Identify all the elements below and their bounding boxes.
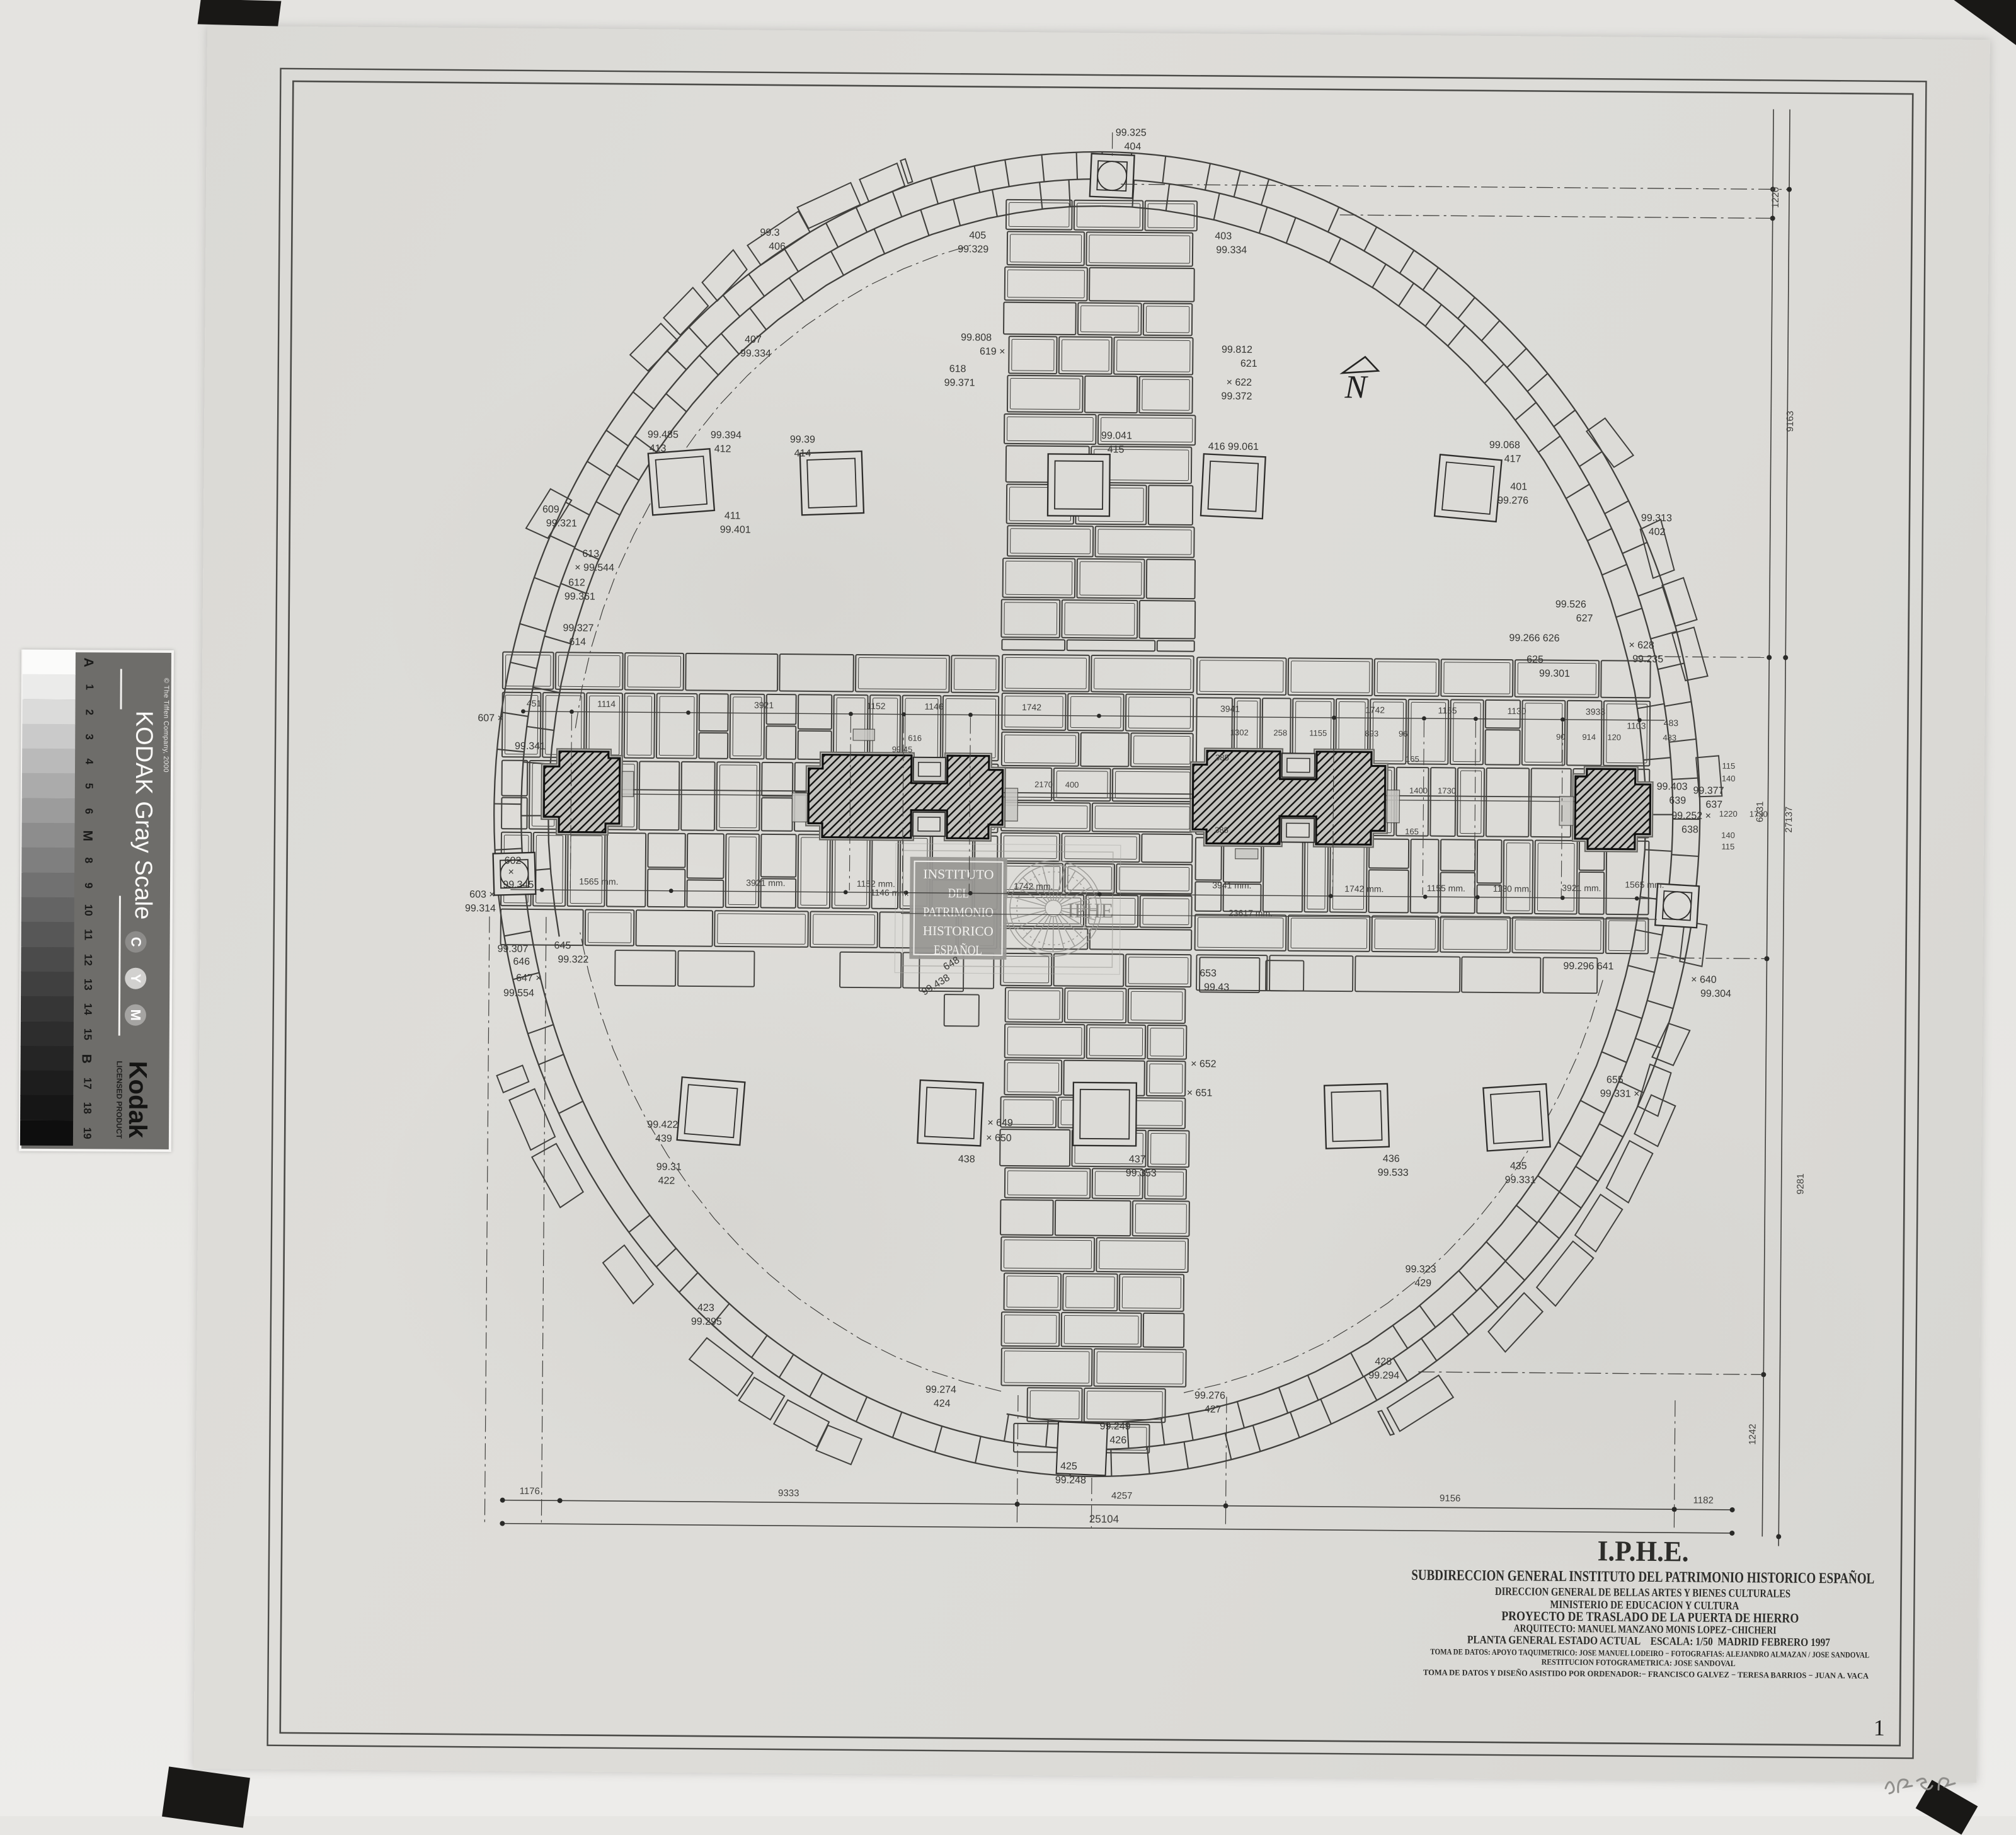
svg-text:404: 404: [1124, 141, 1141, 152]
svg-text:3921 mm.: 3921 mm.: [1562, 883, 1601, 893]
svg-text:99.322: 99.322: [558, 954, 588, 965]
svg-text:653: 653: [1200, 968, 1217, 979]
svg-text:27137: 27137: [1784, 807, 1794, 833]
svg-text:N: N: [1344, 369, 1368, 405]
svg-text:1182: 1182: [1693, 1495, 1714, 1505]
svg-text:1114: 1114: [597, 699, 616, 709]
svg-text:99.554: 99.554: [503, 988, 534, 999]
svg-text:424: 424: [934, 1398, 951, 1409]
svg-text:HISTORICO: HISTORICO: [923, 923, 994, 939]
svg-text:1155 mm.: 1155 mm.: [1427, 883, 1465, 893]
svg-text:99.327: 99.327: [563, 623, 593, 633]
svg-text:655: 655: [1606, 1074, 1624, 1085]
svg-text:99.526: 99.526: [1555, 599, 1586, 610]
svg-text:618: 618: [949, 364, 966, 374]
svg-text:165: 165: [1405, 827, 1419, 836]
svg-text:1152: 1152: [866, 701, 885, 711]
svg-text:99.041: 99.041: [1101, 430, 1132, 441]
svg-text:115: 115: [1722, 761, 1735, 771]
svg-text:99.403: 99.403: [1657, 781, 1688, 792]
svg-text:99.276: 99.276: [1194, 1390, 1225, 1401]
svg-text:1: 1: [1874, 1715, 1885, 1740]
svg-text:400: 400: [1065, 780, 1079, 790]
svg-text:403: 403: [1215, 231, 1232, 241]
svg-text:99.43: 99.43: [1204, 982, 1229, 992]
svg-text:613: 613: [582, 549, 599, 560]
svg-text:3921: 3921: [754, 700, 774, 710]
svg-text:625: 625: [1526, 654, 1543, 665]
svg-text:99.329: 99.329: [958, 244, 988, 255]
svg-text:99.313: 99.313: [1641, 513, 1672, 524]
svg-text:439: 439: [655, 1134, 672, 1144]
svg-text:412: 412: [714, 444, 731, 454]
svg-text:96: 96: [1399, 729, 1408, 739]
svg-text:99.235: 99.235: [1632, 654, 1663, 665]
svg-text:621: 621: [1240, 359, 1257, 369]
svg-text:411: 411: [724, 510, 741, 521]
svg-text:99.274: 99.274: [925, 1384, 956, 1395]
svg-text:I.P.H.E.: I.P.H.E.: [1597, 1534, 1688, 1567]
svg-text:99.422: 99.422: [647, 1119, 678, 1130]
svg-text:99.294: 99.294: [1368, 1370, 1399, 1381]
svg-text:165: 165: [1406, 754, 1419, 764]
svg-text:1103: 1103: [1627, 721, 1646, 731]
svg-text:99.334: 99.334: [740, 348, 771, 359]
svg-text:RESTITUCION FOTOGRAMETRICA: JO: RESTITUCION FOTOGRAMETRICA: JOSE SANDOVA…: [1542, 1657, 1736, 1668]
svg-text:99.295: 99.295: [691, 1316, 722, 1327]
svg-text:SUBDIRECCION GENERAL INSTITUTO: SUBDIRECCION GENERAL INSTITUTO DEL PATRI…: [1411, 1567, 1874, 1587]
svg-text:3933: 3933: [1586, 706, 1605, 716]
svg-text:436: 436: [1383, 1154, 1400, 1165]
svg-text:115: 115: [1721, 842, 1734, 851]
svg-text:× 650: × 650: [986, 1133, 1012, 1144]
svg-text:914: 914: [1582, 732, 1596, 742]
svg-text:99.361: 99.361: [564, 591, 595, 602]
svg-text:× 640: × 640: [1691, 974, 1717, 985]
svg-text:406: 406: [769, 241, 786, 252]
svg-text:9281: 9281: [1795, 1173, 1806, 1195]
svg-text:×: ×: [508, 867, 513, 878]
svg-text:99.401: 99.401: [720, 524, 751, 535]
svg-text:9163: 9163: [1785, 411, 1795, 432]
svg-text:1565 mm.: 1565 mm.: [1625, 880, 1664, 890]
svg-text:99.3: 99.3: [760, 227, 779, 238]
svg-text:99.252 ×: 99.252 ×: [1671, 810, 1711, 821]
svg-text:IPHE: IPHE: [1067, 900, 1114, 923]
svg-text:422: 422: [658, 1176, 675, 1187]
svg-text:638: 638: [1681, 824, 1698, 835]
svg-text:99.372: 99.372: [1221, 391, 1252, 402]
svg-text:612: 612: [568, 577, 585, 588]
svg-text:405: 405: [969, 230, 986, 241]
svg-text:1565 mm.: 1565 mm.: [579, 877, 618, 887]
svg-text:1742 mm.: 1742 mm.: [1344, 883, 1383, 894]
svg-text:9333: 9333: [778, 1488, 799, 1498]
svg-text:× 628: × 628: [1629, 640, 1654, 651]
svg-text:2170: 2170: [1034, 779, 1053, 789]
svg-text:DIRECCION GENERAL DE BELLAS AR: DIRECCION GENERAL DE BELLAS ARTES Y BIEN…: [1495, 1585, 1790, 1600]
svg-text:INSTITUTO: INSTITUTO: [923, 866, 994, 882]
svg-text:99.304: 99.304: [1700, 989, 1731, 999]
svg-text:99.394: 99.394: [711, 430, 742, 440]
svg-text:602: 602: [505, 856, 522, 866]
svg-text:417: 417: [1504, 454, 1521, 464]
svg-text:627: 627: [1576, 613, 1593, 624]
svg-text:99.39: 99.39: [790, 434, 815, 445]
svg-text:99.276: 99.276: [1498, 495, 1528, 506]
svg-text:99.377: 99.377: [1693, 785, 1724, 796]
svg-text:120: 120: [1607, 732, 1621, 742]
svg-text:PATRIMONIO: PATRIMONIO: [923, 904, 994, 920]
svg-text:99.068: 99.068: [1489, 440, 1520, 451]
svg-text:426: 426: [1109, 1435, 1126, 1446]
svg-text:1146 mm.: 1146 mm.: [871, 887, 909, 897]
svg-text:483: 483: [1663, 733, 1676, 742]
svg-text:99.45: 99.45: [892, 744, 913, 754]
svg-text:× 99.544: × 99.544: [575, 562, 614, 573]
svg-text:647 ×: 647 ×: [516, 973, 542, 984]
svg-text:1155: 1155: [1438, 705, 1457, 715]
svg-text:9156: 9156: [1440, 1493, 1461, 1504]
svg-text:1220: 1220: [1719, 809, 1738, 819]
svg-text:99.812: 99.812: [1222, 345, 1252, 355]
svg-text:1176: 1176: [520, 1486, 540, 1497]
svg-text:415: 415: [1108, 444, 1125, 455]
svg-text:414: 414: [794, 448, 811, 459]
svg-text:639: 639: [1669, 795, 1686, 806]
svg-text:423: 423: [697, 1303, 714, 1313]
svg-text:3941: 3941: [1220, 704, 1240, 714]
svg-text:99.296 641: 99.296 641: [1563, 961, 1613, 972]
svg-text:99.321: 99.321: [546, 518, 577, 529]
svg-text:99.341: 99.341: [515, 741, 546, 752]
svg-text:1220: 1220: [1770, 187, 1781, 209]
svg-text:619 ×: 619 ×: [980, 347, 1005, 357]
svg-text:1730: 1730: [1438, 786, 1456, 795]
svg-text:428: 428: [1375, 1356, 1392, 1367]
svg-text:429: 429: [1414, 1278, 1431, 1289]
svg-text:1400: 1400: [1409, 786, 1428, 795]
svg-text:1146: 1146: [924, 701, 943, 711]
svg-text:1155: 1155: [1309, 728, 1327, 738]
svg-text:99.248: 99.248: [1055, 1475, 1086, 1486]
svg-text:99.533: 99.533: [1378, 1168, 1409, 1178]
svg-text:23617 mm.: 23617 mm.: [1228, 908, 1273, 919]
svg-text:438: 438: [958, 1154, 975, 1165]
svg-text:99.301: 99.301: [1539, 669, 1570, 679]
svg-text:TOMA DE DATOS Y DISEÑO ASISTID: TOMA DE DATOS Y DISEÑO ASISTIDO POR ORDE…: [1423, 1667, 1869, 1681]
svg-text:616: 616: [908, 733, 922, 743]
svg-text:427: 427: [1205, 1404, 1222, 1415]
svg-text:99.266 626: 99.266 626: [1509, 633, 1559, 644]
svg-text:637: 637: [1705, 800, 1722, 810]
svg-text:614: 614: [569, 636, 586, 647]
svg-text:99.323: 99.323: [1406, 1264, 1436, 1275]
svg-text:99.249: 99.249: [1100, 1421, 1131, 1432]
svg-text:ESPAÑOL: ESPAÑOL: [934, 942, 982, 958]
svg-text:25104: 25104: [1089, 1513, 1119, 1525]
svg-text:1742: 1742: [1365, 705, 1385, 715]
svg-text:99.325: 99.325: [1116, 127, 1147, 138]
svg-text:603 ×: 603 ×: [469, 889, 495, 900]
svg-text:99.334: 99.334: [1216, 244, 1247, 255]
svg-text:1742: 1742: [1022, 702, 1041, 712]
svg-text:3941 mm.: 3941 mm.: [1212, 880, 1251, 890]
svg-text:× 622: × 622: [1227, 377, 1252, 388]
svg-text:385: 385: [1215, 752, 1229, 762]
svg-text:90: 90: [1556, 732, 1566, 742]
svg-text:402: 402: [1649, 527, 1666, 538]
svg-text:99.31: 99.31: [656, 1162, 682, 1173]
svg-text:437: 437: [1129, 1154, 1146, 1165]
svg-text:451: 451: [527, 698, 542, 708]
svg-text:99.314: 99.314: [465, 903, 496, 914]
svg-text:99.371: 99.371: [944, 377, 975, 388]
svg-text:645: 645: [554, 940, 571, 951]
svg-text:609: 609: [542, 504, 559, 515]
svg-text:3921 mm.: 3921 mm.: [746, 878, 785, 888]
svg-text:99.307: 99.307: [497, 944, 528, 955]
svg-text:140: 140: [1722, 774, 1736, 783]
svg-text:385: 385: [1215, 825, 1228, 834]
svg-text:99.331 ×: 99.331 ×: [1600, 1088, 1640, 1099]
svg-text:607 ×: 607 ×: [478, 713, 503, 723]
svg-text:99.808: 99.808: [961, 332, 992, 343]
svg-text:1302: 1302: [1230, 728, 1249, 737]
svg-text:413: 413: [650, 443, 667, 454]
svg-text:893: 893: [1365, 728, 1378, 738]
svg-text:1730: 1730: [1750, 809, 1768, 819]
svg-text:99.331: 99.331: [1505, 1175, 1536, 1185]
svg-text:1130: 1130: [1507, 706, 1526, 716]
svg-text:× 652: × 652: [1191, 1059, 1217, 1069]
svg-text:416 99.061: 416 99.061: [1208, 441, 1259, 452]
svg-text:1242: 1242: [1747, 1424, 1758, 1445]
svg-text:99.353: 99.353: [1126, 1168, 1157, 1178]
svg-text:1130 mm.: 1130 mm.: [1493, 883, 1532, 894]
svg-text:483: 483: [1664, 718, 1679, 728]
svg-text:407: 407: [745, 335, 762, 345]
svg-text:99.345: 99.345: [503, 880, 534, 890]
svg-text:4257: 4257: [1111, 1490, 1133, 1501]
svg-text:× 651: × 651: [1187, 1088, 1213, 1098]
svg-text:140: 140: [1721, 831, 1735, 840]
svg-text:401: 401: [1510, 481, 1527, 492]
svg-text:× 649: × 649: [987, 1118, 1013, 1129]
svg-text:PLANTA GENERAL ESTADO ACTUAL: PLANTA GENERAL ESTADO ACTUAL ESCALA: 1/5…: [1467, 1633, 1830, 1649]
svg-text:435: 435: [1510, 1161, 1527, 1171]
svg-text:425: 425: [1060, 1461, 1077, 1472]
svg-text:258: 258: [1273, 728, 1287, 737]
svg-text:646: 646: [513, 957, 530, 967]
svg-text:99.485: 99.485: [648, 429, 679, 440]
svg-text:1742 mm.: 1742 mm.: [1014, 881, 1053, 891]
